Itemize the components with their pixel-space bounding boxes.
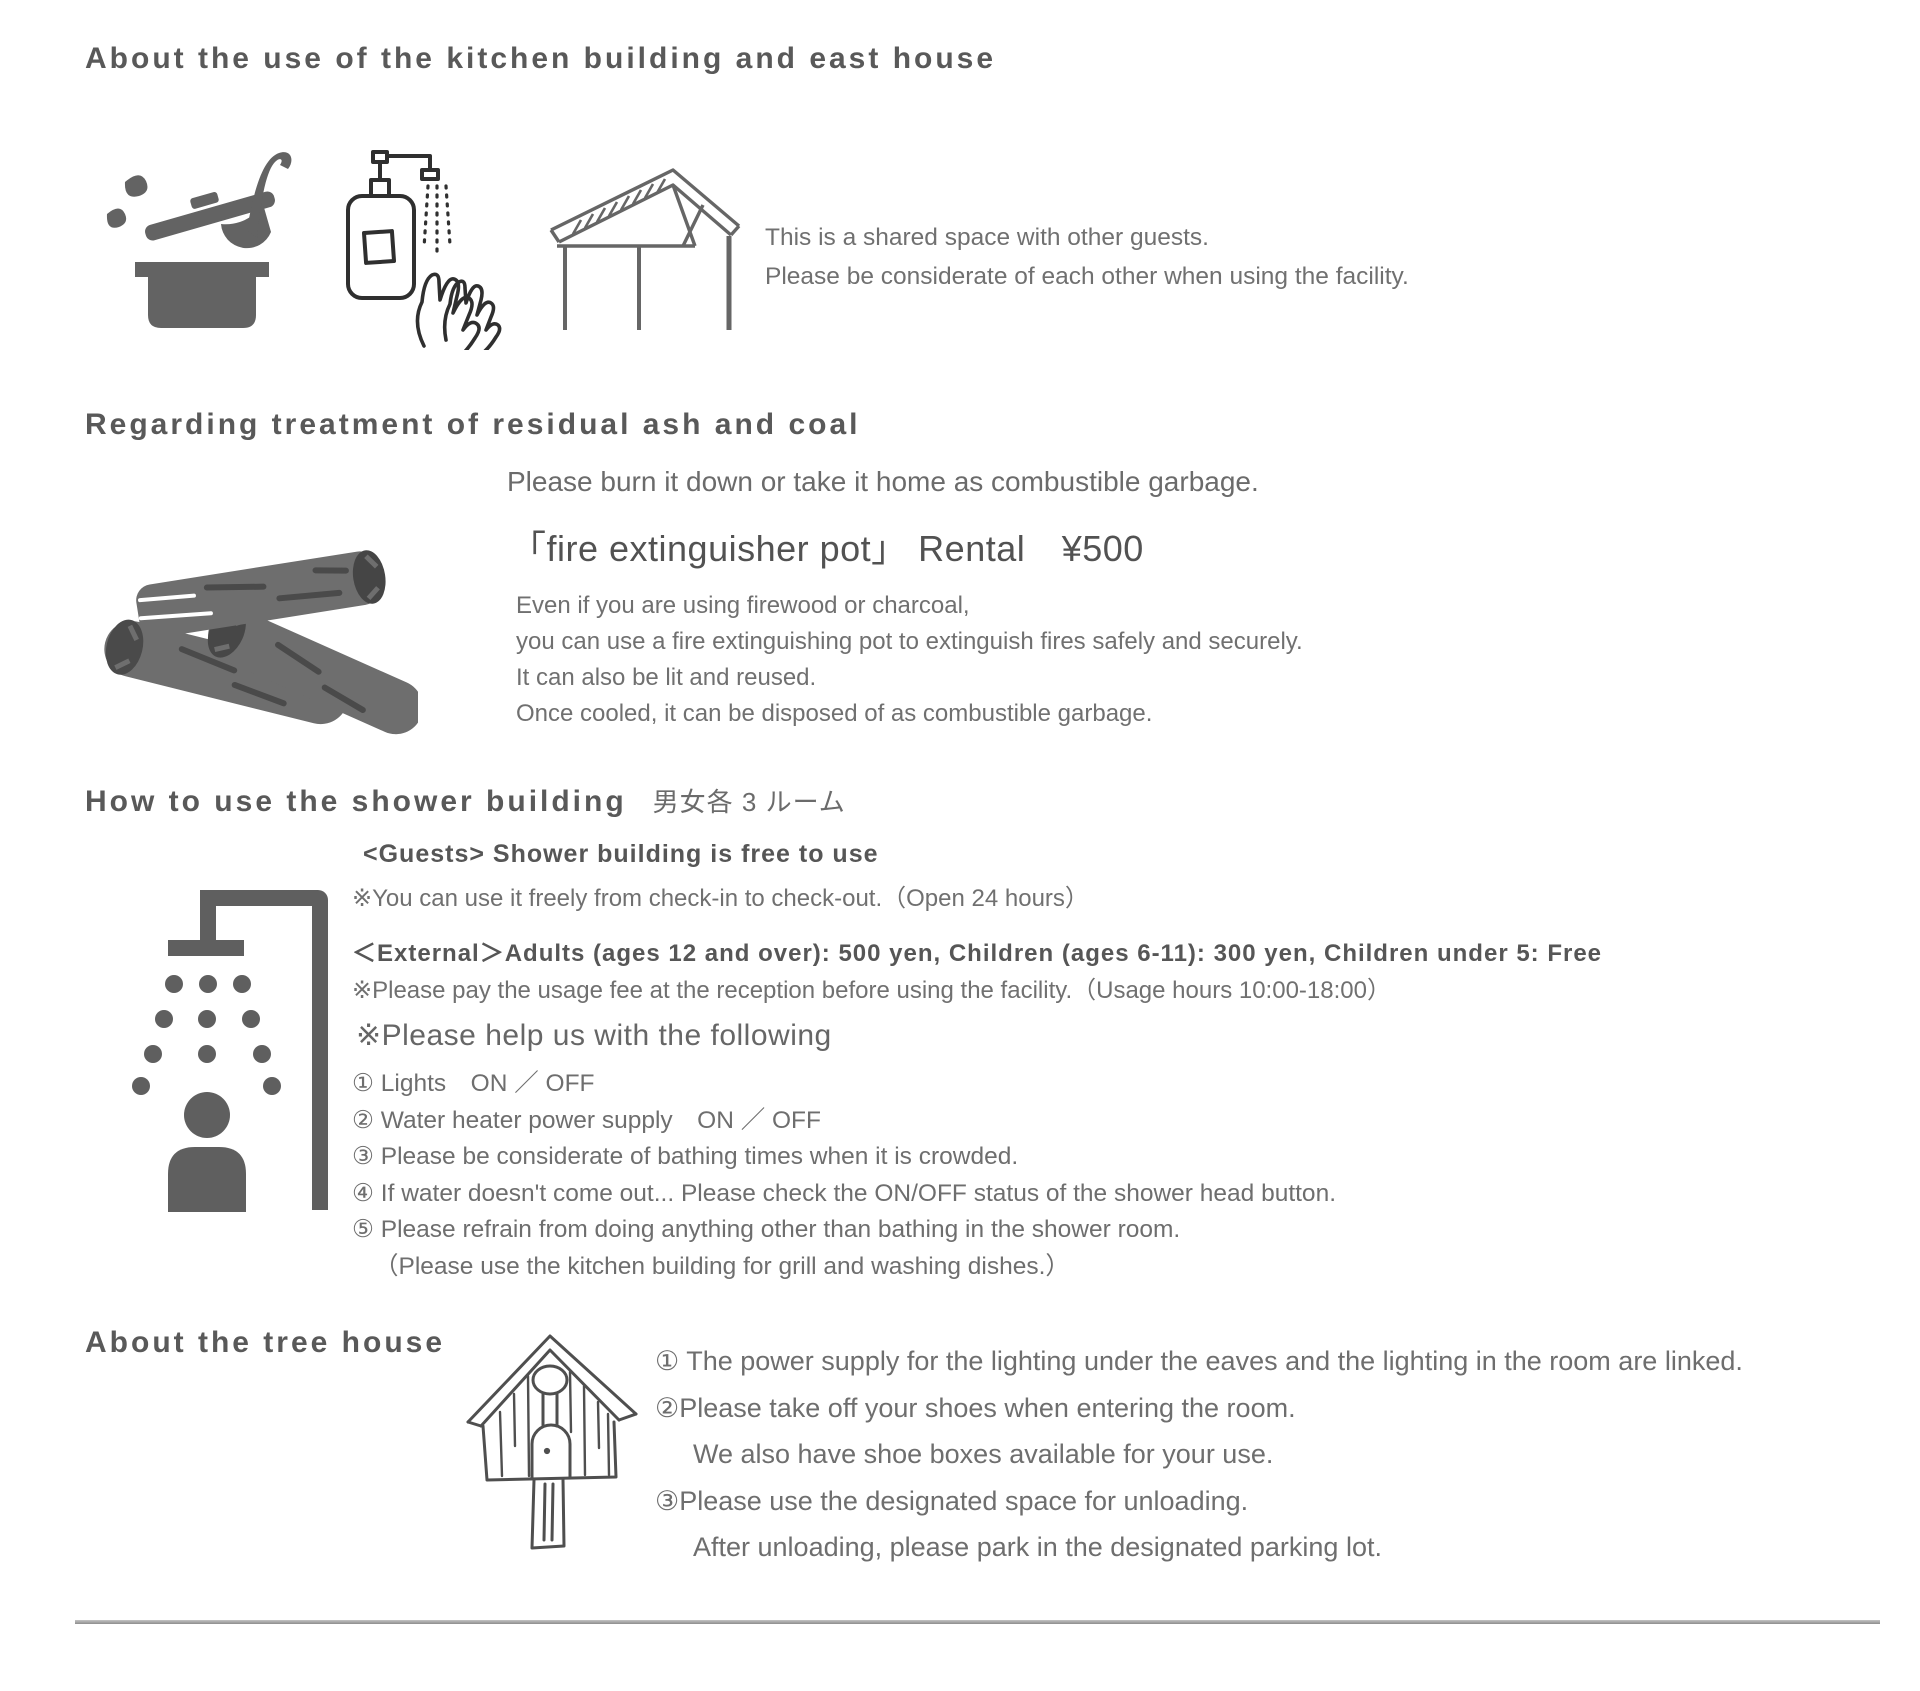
shower-rule-3: ③ Please be considerate of bathing times…	[352, 1139, 1336, 1176]
help-heading: ※Please help us with the following	[356, 1018, 832, 1053]
treehouse-rule-3-note: After unloading, please park in the desi…	[655, 1524, 1743, 1571]
guests-heading: <Guests> Shower building is free to use	[363, 840, 879, 869]
pot-ladle-icon	[95, 138, 305, 333]
kitchen-note-line2: Please be considerate of each other when…	[765, 257, 1409, 296]
treehouse-rule-3: ③Please use the designated space for unl…	[655, 1478, 1743, 1525]
ash-section-title: Regarding treatment of residual ash and …	[85, 408, 860, 442]
bottom-divider	[75, 1620, 1880, 1624]
treehouse-section-title: About the tree house	[85, 1326, 445, 1360]
ash-intro-text: Please burn it down or take it home as c…	[507, 466, 1259, 498]
firewood-charcoal-icon	[88, 528, 418, 743]
shower-title-suffix: 男女各 3 ルーム	[653, 787, 846, 817]
soap-handwash-icon	[338, 140, 513, 350]
ash-detail-line2: you can use a fire extinguishing pot to …	[516, 624, 1303, 660]
kitchen-note-line1: This is a shared space with other guests…	[765, 218, 1209, 257]
treehouse-rule-2-note: We also have shoe boxes available for yo…	[655, 1431, 1743, 1478]
shower-section-title: How to use the shower building男女各 3 ルーム	[85, 782, 846, 819]
guest-info-document: About the use of the kitchen building an…	[0, 0, 1920, 1691]
shower-rule-4: ④ If water doesn't come out... Please ch…	[352, 1176, 1336, 1213]
shower-title-text: How to use the shower building	[85, 785, 627, 818]
treehouse-rules-list: ① The power supply for the lighting unde…	[655, 1338, 1743, 1571]
shower-rule-5-note: （Please use the kitchen building for gri…	[352, 1249, 1336, 1286]
shower-rule-2: ② Water heater power supply ON ／ OFF	[352, 1103, 1336, 1140]
shower-person-icon	[112, 872, 357, 1212]
shower-rules-list: ① Lights ON ／ OFF ② Water heater power s…	[352, 1066, 1336, 1285]
guests-note: ※You can use it freely from check-in to …	[352, 878, 1089, 913]
shower-rule-5: ⑤ Please refrain from doing anything oth…	[352, 1212, 1336, 1249]
external-note: ※Please pay the usage fee at the recepti…	[352, 970, 1391, 1005]
ash-detail-line4: Once cooled, it can be disposed of as co…	[516, 696, 1152, 732]
treehouse-rule-2: ②Please take off your shoes when enterin…	[655, 1385, 1743, 1432]
shower-rule-1: ① Lights ON ／ OFF	[352, 1066, 1336, 1103]
treehouse-rule-1: ① The power supply for the lighting unde…	[655, 1338, 1743, 1385]
ash-detail-line3: It can also be lit and reused.	[516, 660, 816, 696]
kitchen-section-title: About the use of the kitchen building an…	[85, 42, 996, 76]
ash-detail-line1: Even if you are using firewood or charco…	[516, 588, 970, 624]
external-heading: ＜External＞Adults (ages 12 and over): 500…	[352, 933, 1602, 968]
shelter-roof-icon	[543, 160, 743, 335]
rental-title: 「fire extinguisher pot」 Rental ¥500	[510, 520, 1144, 572]
birdhouse-icon	[458, 1328, 648, 1553]
